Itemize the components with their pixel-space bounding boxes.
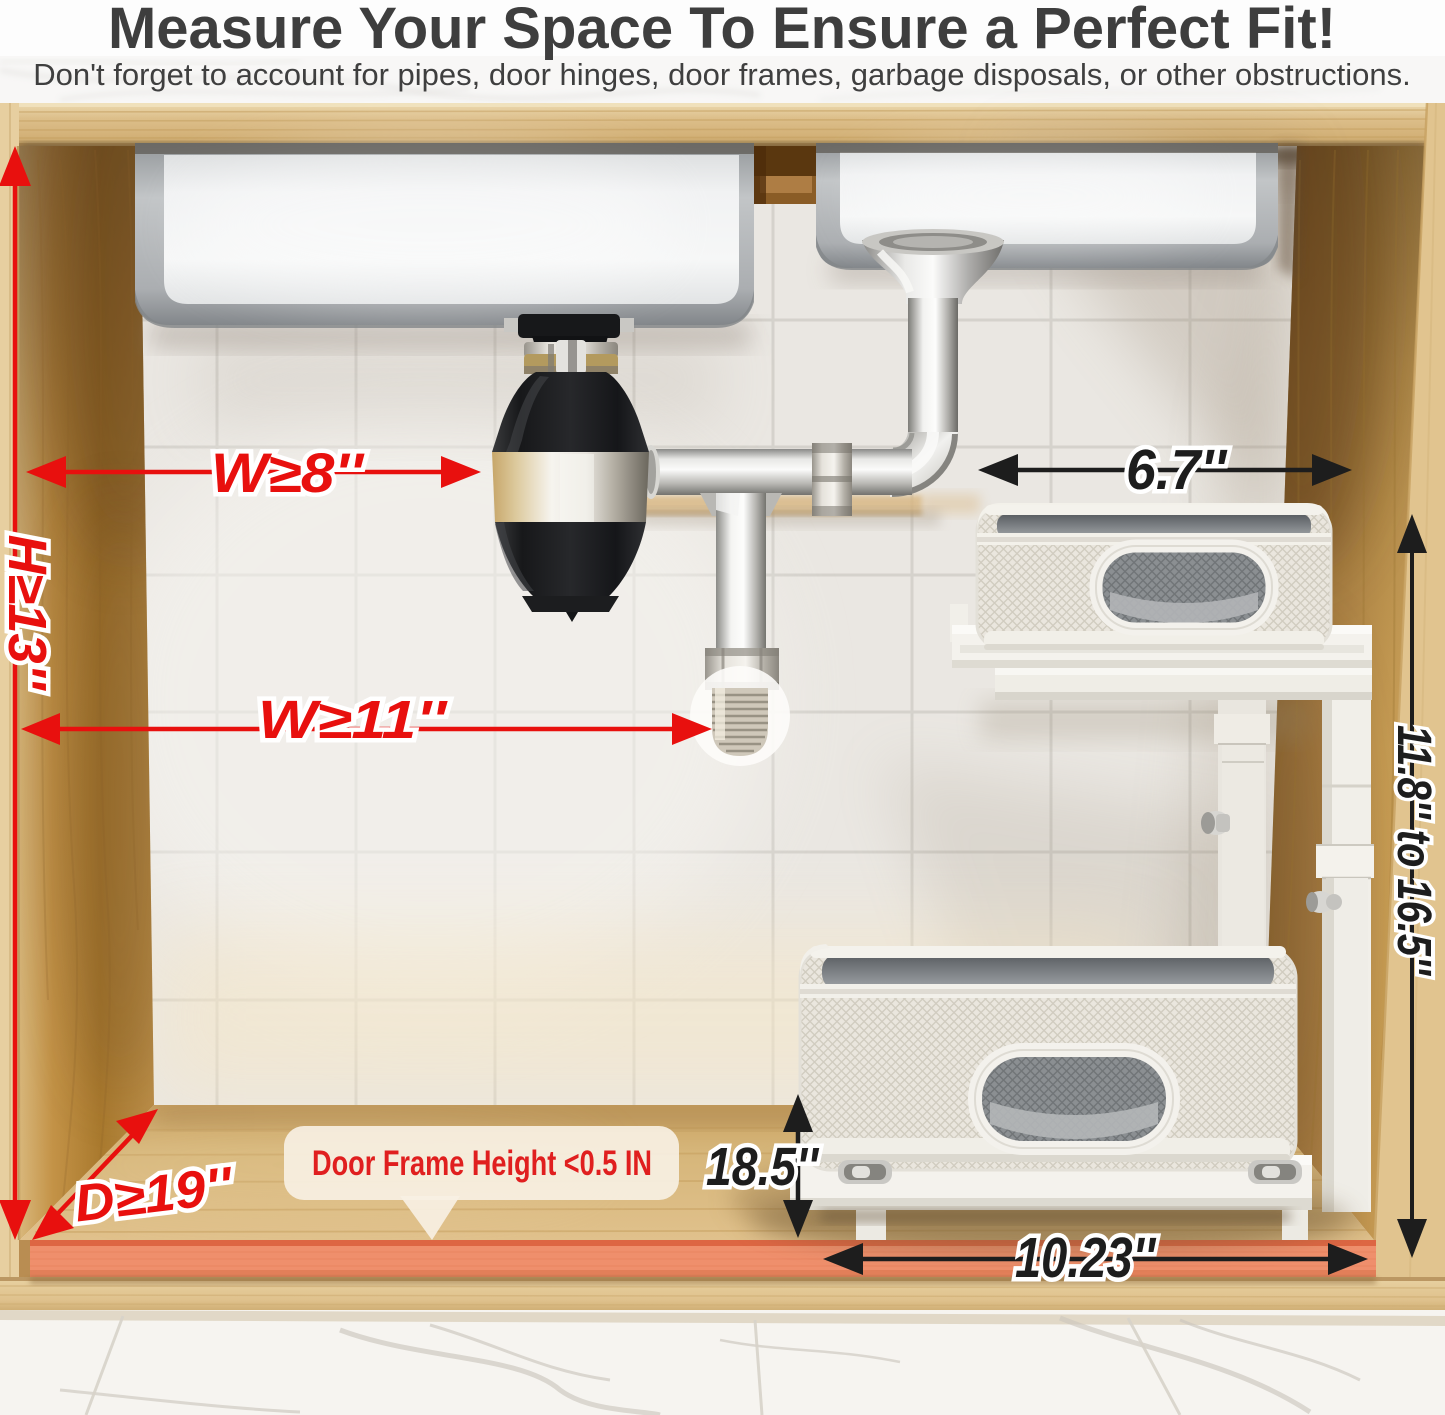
svg-text:Door Frame Height <0.5 IN: Door Frame Height <0.5 IN	[312, 1144, 652, 1183]
svg-text:11.8'' to 16.5'': 11.8'' to 16.5''	[1387, 725, 1440, 976]
svg-text:W≥11'': W≥11''	[258, 690, 448, 750]
svg-text:Don't forget to account for pi: Don't forget to account for pipes, door …	[33, 57, 1411, 92]
svg-text:Measure Your Space To Ensure a: Measure Your Space To Ensure a Perfect F…	[108, 0, 1336, 61]
svg-text:W≥8'': W≥8''	[211, 441, 365, 504]
svg-text:H≥13'': H≥13''	[0, 535, 57, 692]
svg-text:18.5'': 18.5''	[706, 1137, 820, 1197]
svg-text:6.7'': 6.7''	[1126, 438, 1228, 502]
svg-text:10.23'': 10.23''	[1015, 1226, 1157, 1290]
